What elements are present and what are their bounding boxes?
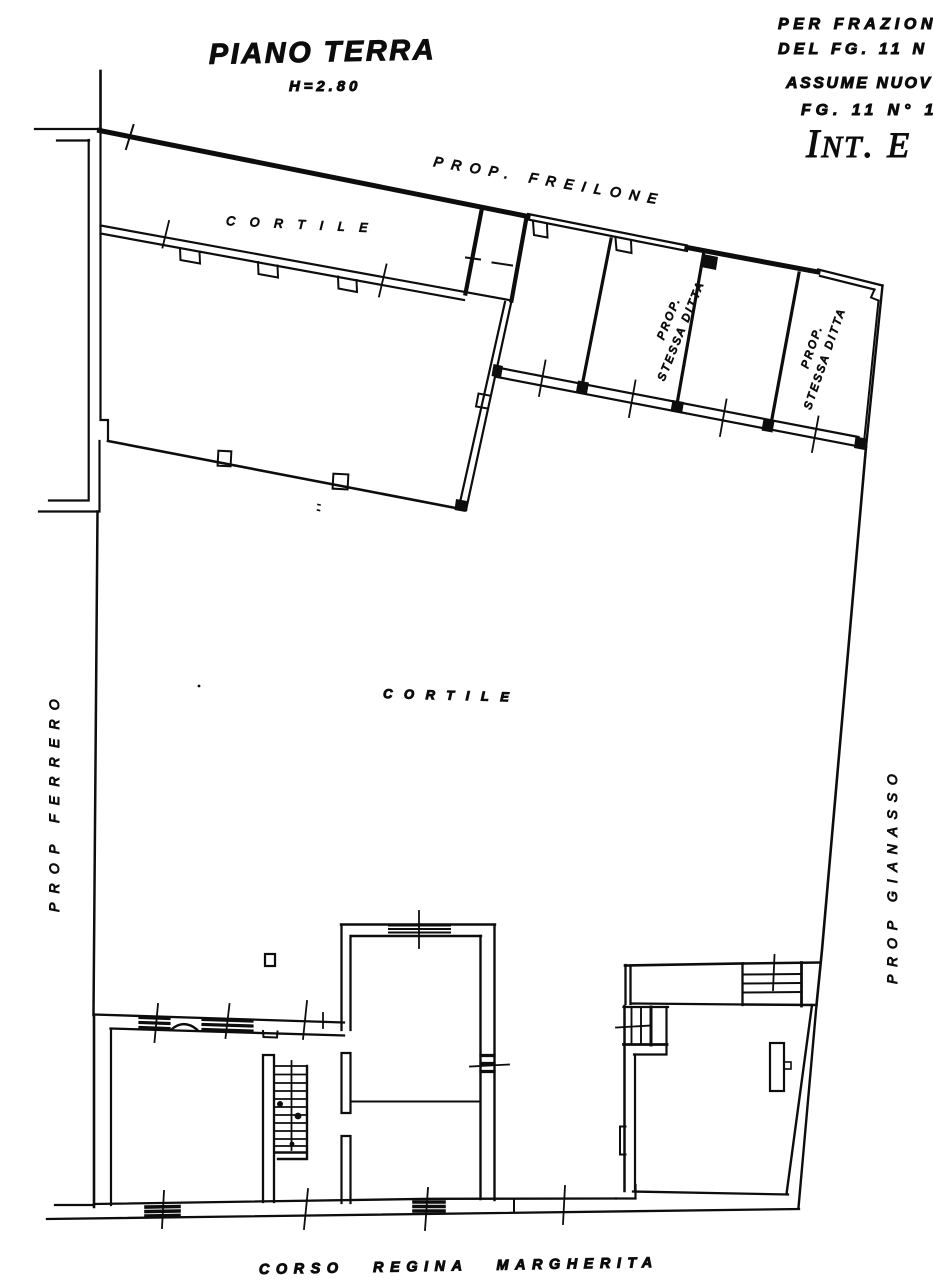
svg-text:FG. 11 N° 1: FG. 11 N° 1 [801,102,933,119]
svg-text:H=2.80: H=2.80 [289,78,361,95]
svg-text:DEL FG. 11 N: DEL FG. 11 N [778,41,928,58]
svg-text:PROP GIANASSO: PROP GIANASSO [884,766,900,984]
svg-text:PER FRAZION: PER FRAZION [778,16,933,33]
svg-text:PROP FERRERO: PROP FERRERO [46,690,62,912]
svg-text:PIANO TERRA: PIANO TERRA [209,34,437,71]
svg-text:ASSUME NUOV: ASSUME NUOV [785,75,933,92]
